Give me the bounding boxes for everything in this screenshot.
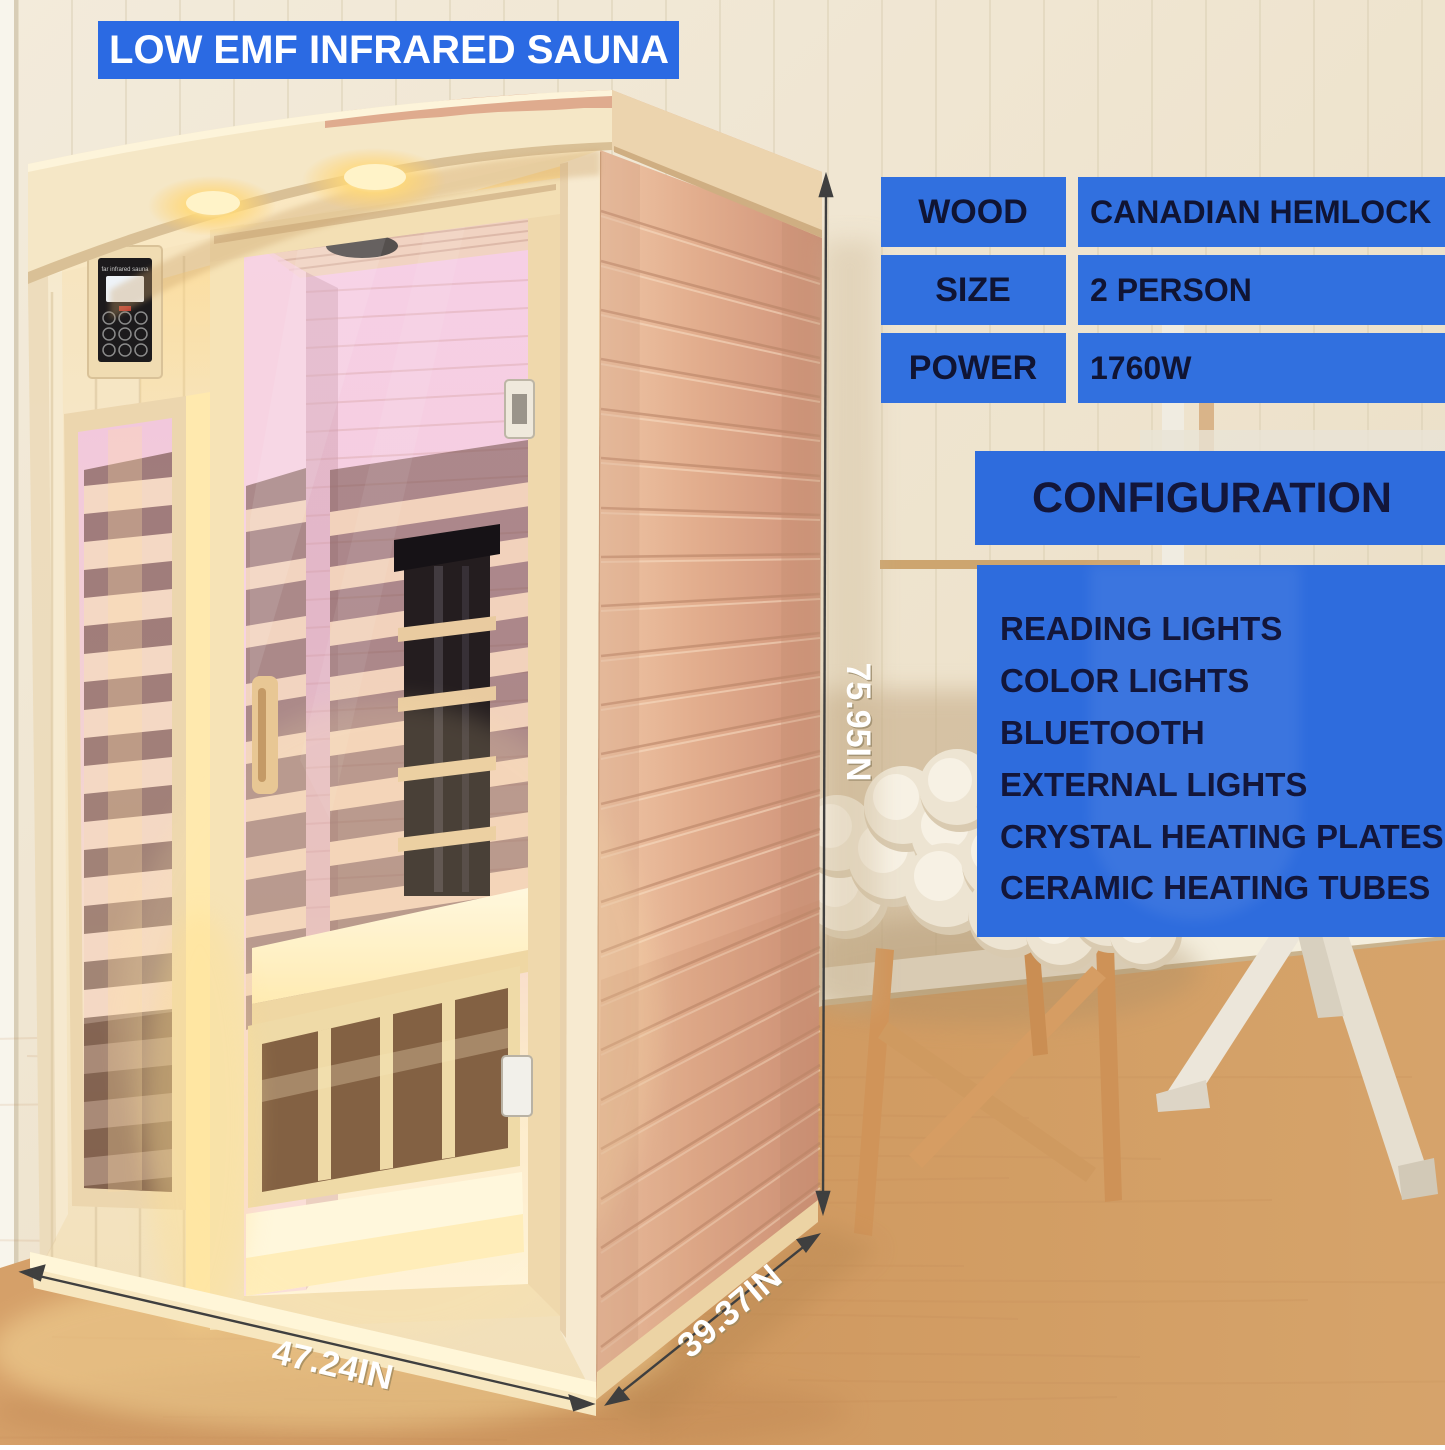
svg-text:POWER: POWER (909, 349, 1037, 387)
svg-text:2 PERSON: 2 PERSON (1090, 272, 1252, 308)
svg-text:far infrared sauna: far infrared sauna (101, 267, 149, 273)
svg-text:CANADIAN HEMLOCK: CANADIAN HEMLOCK (1090, 194, 1431, 230)
svg-text:LOW EMF INFRARED SAUNA: LOW EMF INFRARED SAUNA (109, 28, 669, 72)
svg-text:BLUETOOTH: BLUETOOTH (1000, 714, 1205, 751)
svg-text:WOOD: WOOD (918, 193, 1028, 231)
svg-text:75.95IN: 75.95IN (839, 662, 877, 781)
svg-text:CRYSTAL HEATING PLATES: CRYSTAL HEATING PLATES (1000, 818, 1444, 855)
svg-text:SIZE: SIZE (935, 271, 1011, 309)
svg-text:1760W: 1760W (1090, 350, 1192, 386)
svg-text:READING LIGHTS: READING LIGHTS (1000, 610, 1282, 647)
svg-text:CERAMIC HEATING TUBES: CERAMIC HEATING TUBES (1000, 869, 1430, 906)
svg-text:EXTERNAL LIGHTS: EXTERNAL LIGHTS (1000, 766, 1307, 803)
svg-text:CONFIGURATION: CONFIGURATION (1032, 474, 1392, 522)
svg-text:COLOR LIGHTS: COLOR LIGHTS (1000, 662, 1249, 699)
